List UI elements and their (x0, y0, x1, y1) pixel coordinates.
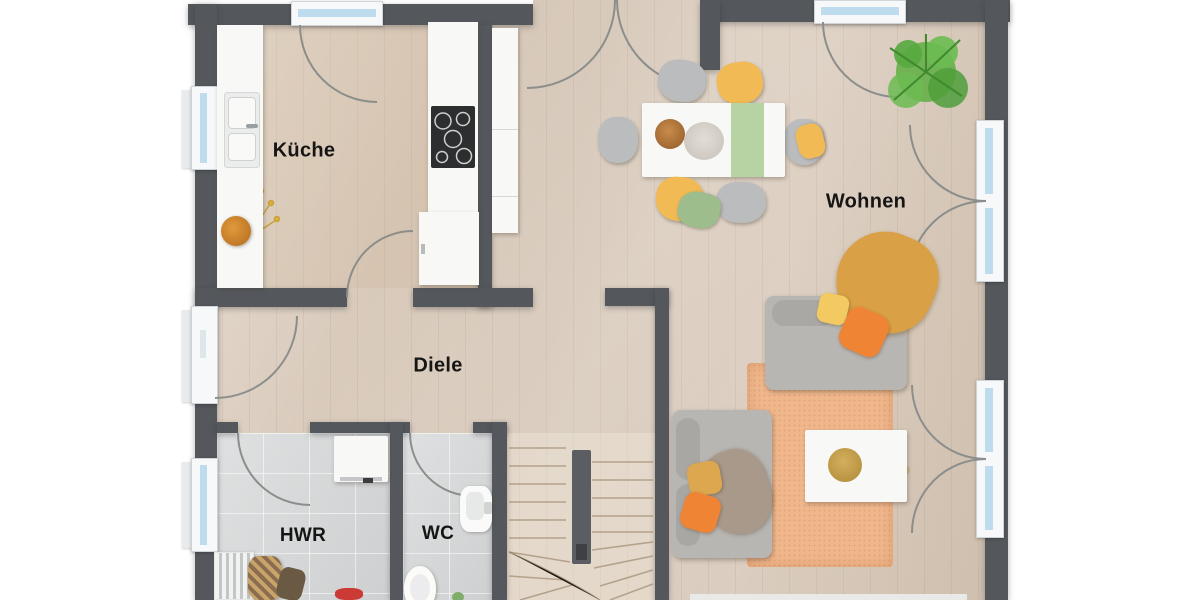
potted-plant-icon (888, 34, 968, 108)
faucet-icon (246, 124, 258, 128)
room-label-wc: WC (422, 523, 454, 545)
french-door-arc (910, 125, 986, 201)
room-label-diele: Diele (413, 355, 462, 378)
washer-detail (340, 477, 382, 481)
sink-basin (228, 133, 256, 161)
staircase-icon (509, 448, 653, 600)
kitchen-door-arc (347, 231, 413, 297)
fruit-bowl-icon (221, 216, 251, 246)
cabinet-divider (492, 129, 518, 130)
basin-bowl (466, 492, 484, 520)
room-label-wohnen: Wohnen (826, 191, 906, 214)
french-door-arc (912, 385, 986, 459)
wc-door-arc (410, 433, 473, 496)
washing-machine-icon (334, 436, 388, 482)
room-label-kueche: Küche (273, 140, 336, 163)
entry-door-arc (215, 316, 297, 398)
toilet-bowl (410, 574, 430, 600)
dining-chair-icon (716, 182, 766, 223)
laundry-item (335, 588, 363, 600)
wc-plant-icon (452, 592, 464, 600)
centerpiece-bowl-icon (655, 119, 685, 149)
cabinet-divider (492, 196, 518, 197)
kitchen-window-door-arc (300, 25, 377, 102)
living-window-door-arc (823, 22, 898, 97)
cooktop-icon (431, 106, 475, 168)
kitchen-door-leaf (419, 212, 479, 285)
dining-chair-icon (598, 117, 638, 163)
tall-cabinet-icon (492, 28, 518, 233)
washer-detail (363, 478, 373, 483)
plan-overlay (0, 0, 1200, 600)
table-runner-icon (731, 103, 764, 177)
centerpiece-flowers-icon (684, 122, 724, 160)
faucet-icon (484, 502, 492, 514)
room-label-hwr: HWR (280, 525, 326, 547)
top-double-door-arc-left (527, 0, 615, 88)
decor-plate-icon (828, 448, 862, 482)
sideboard-icon (690, 594, 967, 600)
french-door-arc (912, 459, 986, 533)
door-handle-icon (421, 244, 425, 254)
hwr-door-arc (238, 433, 310, 505)
floor-plan: Küche Wohnen Diele HWR WC (0, 0, 1200, 600)
